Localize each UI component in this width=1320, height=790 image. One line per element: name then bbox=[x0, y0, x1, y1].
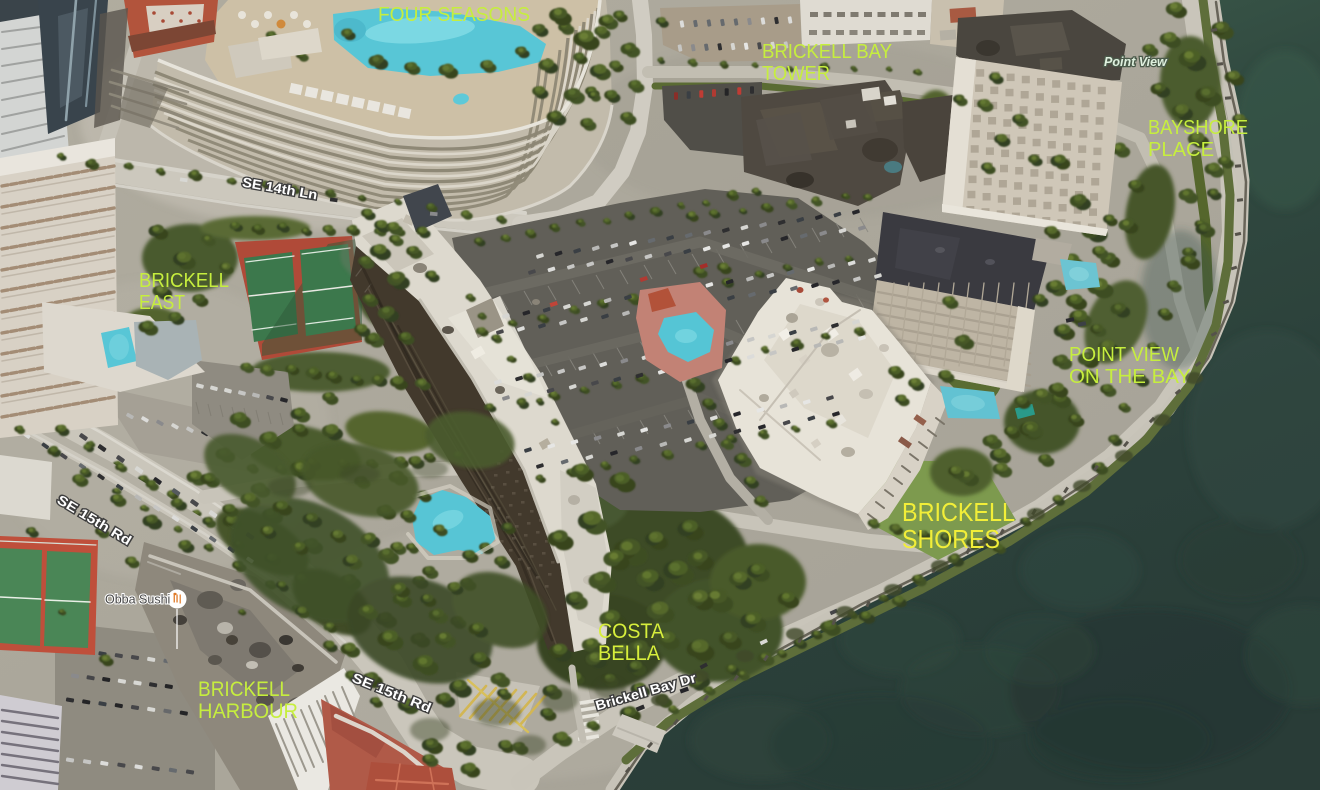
svg-text:BELLA: BELLA bbox=[598, 641, 661, 665]
svg-text:BAYSHORE: BAYSHORE bbox=[1148, 116, 1248, 139]
svg-text:COSTA: COSTA bbox=[598, 619, 665, 643]
svg-text:POINT VIEW: POINT VIEW bbox=[1069, 343, 1180, 366]
svg-text:BRICKELL: BRICKELL bbox=[198, 677, 290, 701]
svg-text:TOWER: TOWER bbox=[762, 62, 830, 85]
svg-text:FOUR SEASONS: FOUR SEASONS bbox=[378, 3, 530, 26]
svg-text:BRICKELL: BRICKELL bbox=[139, 269, 229, 292]
svg-text:SHORES: SHORES bbox=[902, 526, 1000, 554]
svg-text:HARBOUR: HARBOUR bbox=[198, 699, 298, 723]
svg-text:EAST: EAST bbox=[139, 291, 185, 314]
svg-text:Point View: Point View bbox=[1104, 55, 1168, 69]
svg-text:Obba Sushi: Obba Sushi bbox=[105, 593, 170, 607]
svg-text:BRICKELL: BRICKELL bbox=[902, 499, 1015, 527]
svg-text:BRICKELL BAY: BRICKELL BAY bbox=[762, 40, 892, 63]
svg-text:ON THE BAY: ON THE BAY bbox=[1069, 365, 1191, 388]
svg-text:PLACE: PLACE bbox=[1148, 138, 1214, 161]
